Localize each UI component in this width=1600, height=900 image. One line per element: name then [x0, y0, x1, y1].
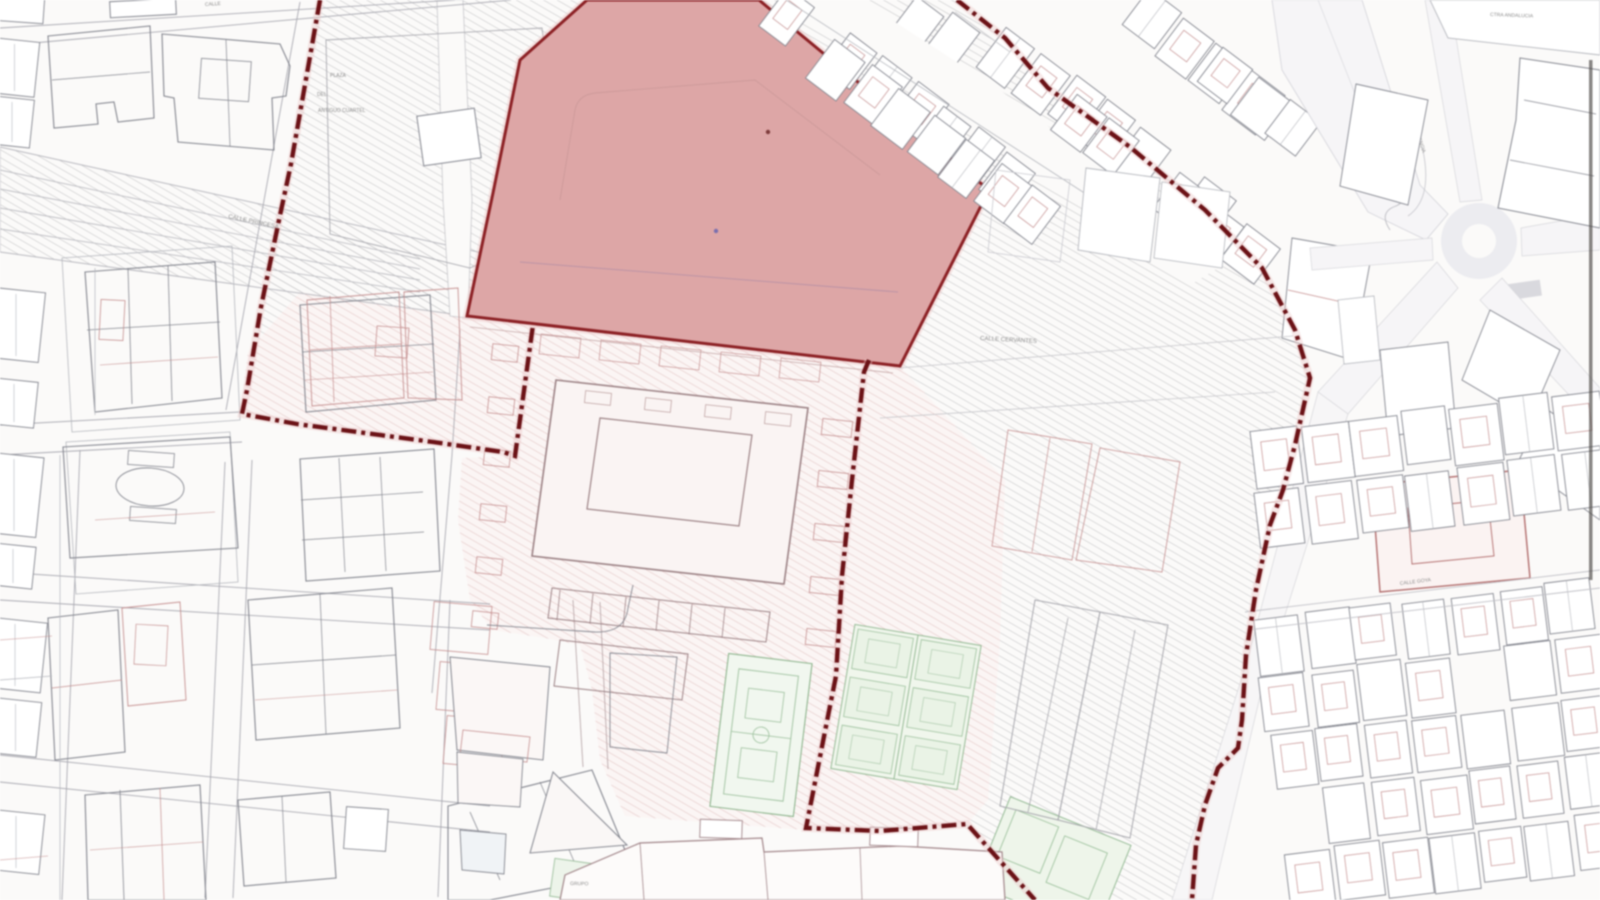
svg-text:GRUPO: GRUPO	[570, 881, 589, 887]
svg-text:DEL: DEL	[317, 92, 327, 98]
svg-text:PLAZA: PLAZA	[330, 73, 347, 79]
svg-text:ANTIGUO CUARTEL: ANTIGUO CUARTEL	[318, 108, 366, 114]
svg-text:CALLE: CALLE	[205, 1, 222, 8]
